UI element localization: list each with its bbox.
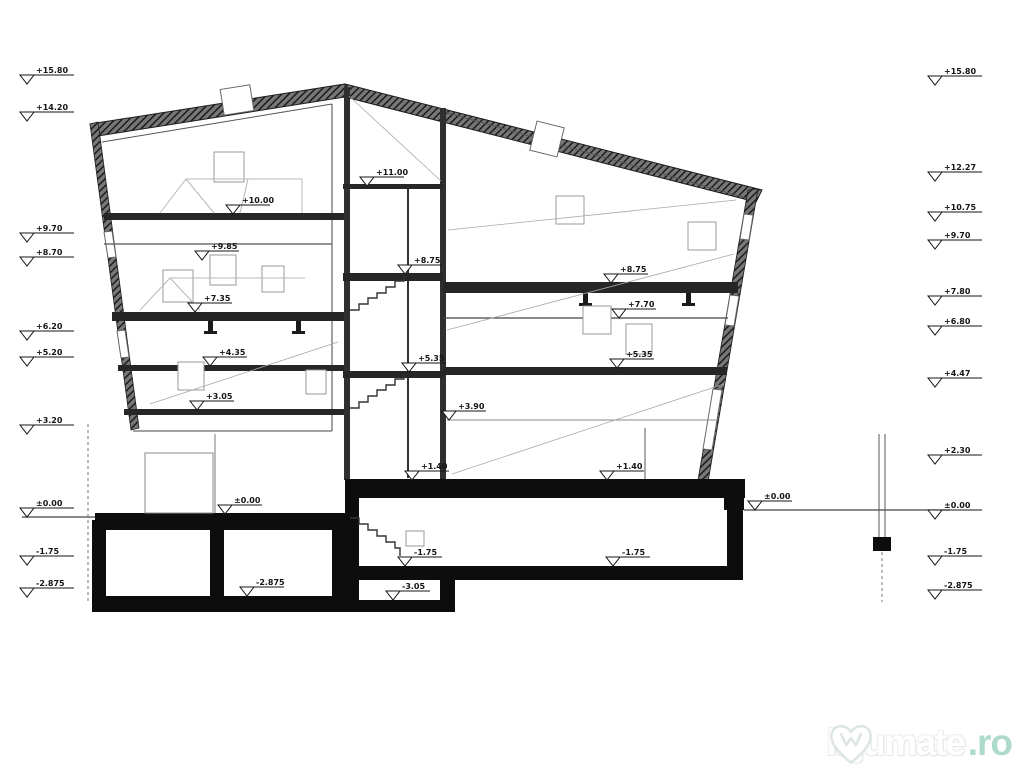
svg-text:+5.35: +5.35 <box>418 354 445 363</box>
elevation-marker: +5.20 <box>20 348 74 366</box>
elevation-marker: +10.75 <box>928 203 982 221</box>
svg-text:+15.80: +15.80 <box>944 67 976 76</box>
svg-text:-1.75: -1.75 <box>622 548 645 557</box>
elevation-marker: +14.20 <box>20 103 74 121</box>
elevation-marker: +5.35 <box>610 350 654 368</box>
svg-text:-2.875: -2.875 <box>256 578 285 587</box>
elevation-marker: ±0.00 <box>928 501 982 519</box>
svg-text:+5.20: +5.20 <box>36 348 63 357</box>
elevation-marker: +3.90 <box>442 402 486 420</box>
svg-text:+6.80: +6.80 <box>944 317 971 326</box>
elevation-marker: +9.70 <box>20 224 74 242</box>
elevation-marker: -3.05 <box>386 582 430 600</box>
elevation-marker: -1.75 <box>398 548 442 566</box>
svg-text:+7.70: +7.70 <box>628 300 655 309</box>
svg-text:+3.20: +3.20 <box>36 416 63 425</box>
svg-text:+10.00: +10.00 <box>242 196 274 205</box>
left-exterior-wall <box>90 122 139 430</box>
retaining-wall <box>873 434 891 602</box>
svg-text:+8.70: +8.70 <box>36 248 63 257</box>
svg-text:+8.75: +8.75 <box>414 256 441 265</box>
svg-text:+6.20: +6.20 <box>36 322 63 331</box>
elevation-marker: +8.75 <box>604 265 648 283</box>
window <box>117 330 129 358</box>
elevation-marker: +3.05 <box>190 392 234 410</box>
elevation-marker: -1.75 <box>928 547 982 565</box>
elevation-marker: +7.80 <box>928 287 982 305</box>
svg-text:-1.75: -1.75 <box>36 547 59 556</box>
elevation-marker: ±0.00 <box>218 496 262 514</box>
elevation-marker: ±0.00 <box>20 499 74 517</box>
elevation-marker: -2.875 <box>240 578 285 596</box>
lajumate-logo-icon <box>827 722 875 766</box>
svg-text:+2.30: +2.30 <box>944 446 971 455</box>
elevation-marker: -1.75 <box>20 547 74 565</box>
svg-text:+7.80: +7.80 <box>944 287 971 296</box>
elevation-marker: +1.40 <box>600 462 644 480</box>
elevation-marker: +9.70 <box>928 231 982 249</box>
svg-text:+9.70: +9.70 <box>36 224 63 233</box>
svg-text:+3.90: +3.90 <box>458 402 485 411</box>
svg-text:+5.35: +5.35 <box>626 350 653 359</box>
elevation-marker: +15.80 <box>20 66 74 84</box>
window <box>740 214 753 240</box>
svg-text:+11.00: +11.00 <box>376 168 408 177</box>
elevation-marker: +12.27 <box>928 163 982 181</box>
watermark: lajumate .ro <box>827 722 1012 764</box>
svg-text:±0.00: ±0.00 <box>764 492 791 501</box>
building-section-drawing: +15.80+14.20+9.70+8.70+6.20+5.20+3.20±0.… <box>0 0 1024 768</box>
elevation-marker: +6.20 <box>20 322 74 340</box>
elevation-marker: -2.875 <box>20 579 74 597</box>
svg-text:-2.875: -2.875 <box>944 581 973 590</box>
svg-text:+10.75: +10.75 <box>944 203 976 212</box>
svg-text:-1.75: -1.75 <box>944 547 967 556</box>
svg-text:-2.875: -2.875 <box>36 579 65 588</box>
elevation-marker: +2.30 <box>928 446 982 464</box>
svg-text:-3.05: -3.05 <box>402 582 425 591</box>
svg-text:+4.47: +4.47 <box>944 369 970 378</box>
svg-text:+9.85: +9.85 <box>211 242 238 251</box>
elevation-marker: ±0.00 <box>748 492 792 510</box>
svg-text:±0.00: ±0.00 <box>234 496 261 505</box>
svg-text:-1.75: -1.75 <box>414 548 437 557</box>
elevation-marker: +4.35 <box>203 348 247 366</box>
svg-text:+12.27: +12.27 <box>944 163 976 172</box>
svg-text:+8.75: +8.75 <box>620 265 647 274</box>
elevation-marker: +10.00 <box>226 196 274 214</box>
svg-text:+3.05: +3.05 <box>206 392 233 401</box>
svg-text:+14.20: +14.20 <box>36 103 68 112</box>
svg-text:+9.70: +9.70 <box>944 231 971 240</box>
elevation-marker: +15.80 <box>928 67 982 85</box>
elevation-marker: +6.80 <box>928 317 982 335</box>
watermark-tld: .ro <box>968 722 1012 764</box>
elevation-marker: -2.875 <box>928 581 982 599</box>
svg-text:±0.00: ±0.00 <box>36 499 63 508</box>
svg-text:+1.40: +1.40 <box>616 462 643 471</box>
elevation-marker: +7.35 <box>188 294 232 312</box>
svg-text:+1.40: +1.40 <box>421 462 448 471</box>
svg-text:±0.00: ±0.00 <box>944 501 971 510</box>
elevation-marker: +4.47 <box>928 369 982 387</box>
stair-core <box>332 87 443 480</box>
elevation-marker: +8.70 <box>20 248 74 266</box>
svg-text:+15.80: +15.80 <box>36 66 68 75</box>
elevation-marker: +7.70 <box>612 300 656 318</box>
section-drawing-svg: +15.80+14.20+9.70+8.70+6.20+5.20+3.20±0.… <box>0 0 1024 768</box>
svg-text:+7.35: +7.35 <box>204 294 231 303</box>
terrace <box>145 453 213 513</box>
elevation-marker: +3.20 <box>20 416 74 434</box>
elevation-marker: -1.75 <box>606 548 650 566</box>
elevation-marker: +8.75 <box>398 256 442 274</box>
window <box>725 295 739 326</box>
elevation-marker: +11.00 <box>360 168 408 186</box>
chimney <box>220 85 254 115</box>
svg-text:+4.35: +4.35 <box>219 348 246 357</box>
